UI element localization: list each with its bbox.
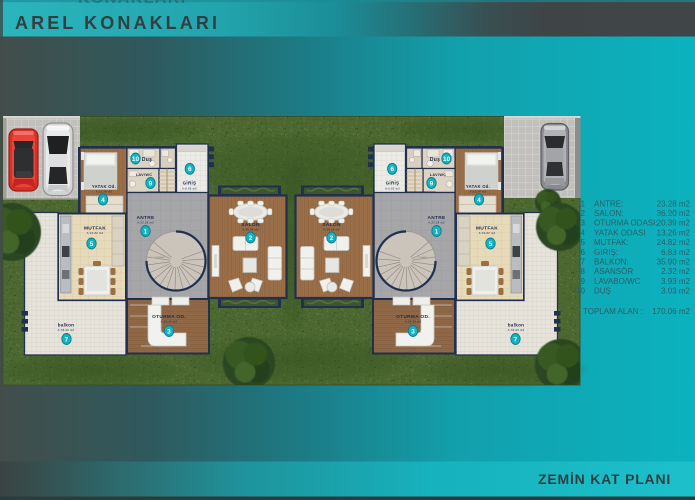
svg-text:170.06 m2: 170.06 m2 (652, 307, 690, 316)
svg-text:20.39 m2: 20.39 m2 (657, 219, 691, 228)
svg-text:KONAKLARI: KONAKLARI (78, 0, 187, 7)
svg-text:A:35.90 m2: A:35.90 m2 (58, 328, 75, 332)
svg-text:YATAK Od.: YATAK Od. (92, 184, 116, 189)
svg-text:3: 3 (411, 328, 415, 335)
svg-text:4: 4 (581, 228, 586, 237)
svg-text:balkon: balkon (508, 323, 525, 328)
svg-text:YATAK ODASI: YATAK ODASI (594, 228, 646, 237)
svg-text:A:13.26 m2: A:13.26 m2 (470, 190, 487, 194)
svg-text:LAVABO/WC: LAVABO/WC (594, 277, 641, 286)
svg-text:AREL KONAKLARI: AREL KONAKLARI (15, 13, 220, 33)
svg-text:MUTFAK:: MUTFAK: (594, 238, 629, 247)
svg-text:SALON:: SALON: (594, 209, 623, 218)
svg-text:YUKARI: YUKARI (155, 256, 165, 259)
svg-text:ANTRE: ANTRE (136, 215, 155, 221)
svg-text:balkon: balkon (58, 323, 75, 328)
svg-text:BALKON:: BALKON: (594, 258, 629, 267)
svg-text:9: 9 (430, 180, 434, 187)
svg-text:A:35.90 m2: A:35.90 m2 (508, 328, 525, 332)
svg-text:10: 10 (132, 156, 140, 163)
svg-text:A:20.39 m2: A:20.39 m2 (161, 319, 178, 323)
svg-text:6: 6 (581, 248, 586, 257)
svg-text:A:13.26 m2: A:13.26 m2 (96, 190, 113, 194)
svg-text:10: 10 (443, 156, 451, 163)
svg-text:OTURMA OD.: OTURMA OD. (152, 314, 186, 320)
svg-text:ZEMİN KAT PLANI: ZEMİN KAT PLANI (538, 471, 671, 487)
svg-text:A:36.20 m2: A:36.20 m2 (323, 227, 340, 231)
svg-text:SALON: SALON (322, 222, 341, 228)
svg-text:5: 5 (489, 241, 493, 248)
svg-text:A:24.82 m2: A:24.82 m2 (479, 231, 496, 235)
svg-text:23.28 m2: 23.28 m2 (657, 199, 691, 208)
svg-text:LAV/WC: LAV/WC (136, 173, 153, 177)
svg-text:5: 5 (90, 241, 94, 248)
svg-text:A:36.20 m2: A:36.20 m2 (242, 227, 259, 231)
svg-text:7: 7 (514, 336, 518, 343)
svg-text:2: 2 (330, 235, 334, 242)
svg-text:GİRİŞ: GİRİŞ (183, 180, 197, 186)
svg-text:Duş: Duş (142, 157, 152, 163)
svg-text:MUTFAK: MUTFAK (84, 226, 106, 232)
svg-text:9: 9 (149, 180, 153, 187)
svg-text:3: 3 (581, 219, 586, 228)
svg-text:35.90 m2: 35.90 m2 (657, 258, 691, 267)
svg-text:1: 1 (435, 228, 439, 235)
svg-text:YUKARI: YUKARI (417, 256, 427, 259)
svg-text:8: 8 (581, 267, 586, 276)
svg-text:9: 9 (581, 277, 586, 286)
svg-text:1: 1 (144, 228, 148, 235)
svg-text:24.82 m2: 24.82 m2 (657, 238, 691, 247)
svg-text:3: 3 (167, 328, 171, 335)
svg-text:OTURMA OD.: OTURMA OD. (396, 314, 430, 320)
svg-text:A:6.83 m2: A:6.83 m2 (385, 186, 400, 190)
svg-text:4: 4 (477, 197, 481, 204)
svg-text:6: 6 (188, 166, 192, 173)
svg-text:Duş: Duş (430, 157, 440, 163)
svg-text:OTURMA ODASI:: OTURMA ODASI: (594, 219, 658, 228)
svg-text:TOPLAM ALAN :: TOPLAM ALAN : (583, 307, 643, 316)
svg-text:GIRIŞ:: GIRIŞ: (594, 248, 618, 257)
svg-text:MUTFAK: MUTFAK (476, 226, 498, 232)
svg-text:A:24.82 m2: A:24.82 m2 (87, 231, 104, 235)
svg-text:4: 4 (101, 197, 105, 204)
svg-text:A:23.28 m2: A:23.28 m2 (137, 220, 154, 224)
svg-text:SALON: SALON (241, 222, 260, 228)
svg-text:YATAK Od.: YATAK Od. (466, 184, 490, 189)
svg-text:7: 7 (581, 258, 586, 267)
svg-text:1: 1 (581, 199, 586, 208)
svg-text:13.26 m2: 13.26 m2 (657, 228, 691, 237)
svg-text:A:6.83 m2: A:6.83 m2 (182, 186, 197, 190)
svg-text:6: 6 (390, 166, 394, 173)
svg-text:10: 10 (576, 287, 585, 296)
svg-text:3.93 m2: 3.93 m2 (661, 277, 690, 286)
svg-text:DUŞ: DUŞ (594, 287, 611, 296)
svg-text:ASANSÖR: ASANSÖR (594, 267, 633, 276)
svg-text:6.83 m2: 6.83 m2 (661, 248, 690, 257)
svg-text:2: 2 (249, 235, 253, 242)
svg-text:A:23.28 m2: A:23.28 m2 (428, 220, 445, 224)
svg-text:ANTRE: ANTRE (427, 215, 446, 221)
svg-text:A:20.39 m2: A:20.39 m2 (405, 319, 422, 323)
svg-text:5: 5 (581, 238, 586, 247)
svg-text:ANTRE:: ANTRE: (594, 199, 623, 208)
svg-text:36.20 m2: 36.20 m2 (657, 209, 691, 218)
svg-text:2.32 m2: 2.32 m2 (661, 267, 690, 276)
svg-text:2: 2 (581, 209, 586, 218)
svg-text:LAV/WC: LAV/WC (430, 173, 447, 177)
svg-text:7: 7 (65, 336, 69, 343)
svg-text:GİRİŞ: GİRİŞ (386, 180, 400, 186)
svg-text:3.03 m2: 3.03 m2 (661, 287, 690, 296)
